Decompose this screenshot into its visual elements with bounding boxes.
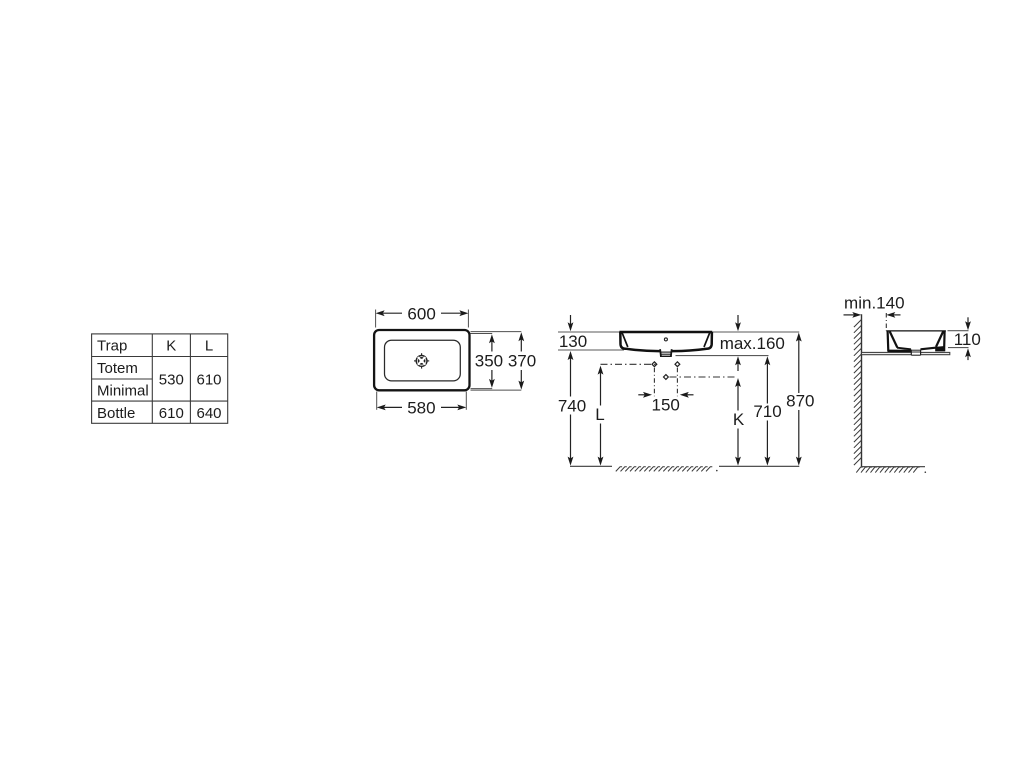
svg-text:L: L [595,405,604,424]
svg-text:Minimal: Minimal [97,383,149,400]
svg-text:110: 110 [954,330,981,349]
svg-text:max.160: max.160 [720,334,785,353]
svg-text:min.140: min.140 [844,294,904,313]
svg-text:K: K [733,410,745,429]
svg-text:530: 530 [159,371,184,388]
svg-text:600: 600 [407,304,435,323]
svg-text:870: 870 [786,392,814,411]
svg-text:640: 640 [196,405,221,422]
svg-text:580: 580 [407,399,435,418]
svg-text:K: K [166,338,176,355]
svg-text:740: 740 [558,396,586,415]
svg-text:610: 610 [159,405,184,422]
svg-text:350 370: 350 370 [475,352,536,371]
svg-text:710: 710 [753,402,781,421]
svg-text:130: 130 [559,332,587,351]
svg-text:Trap: Trap [97,338,127,355]
svg-text:610: 610 [196,371,221,388]
svg-text:Totem: Totem [97,360,138,377]
svg-text:L: L [205,338,213,355]
svg-text:150: 150 [652,396,680,415]
svg-text:Bottle: Bottle [97,405,135,422]
